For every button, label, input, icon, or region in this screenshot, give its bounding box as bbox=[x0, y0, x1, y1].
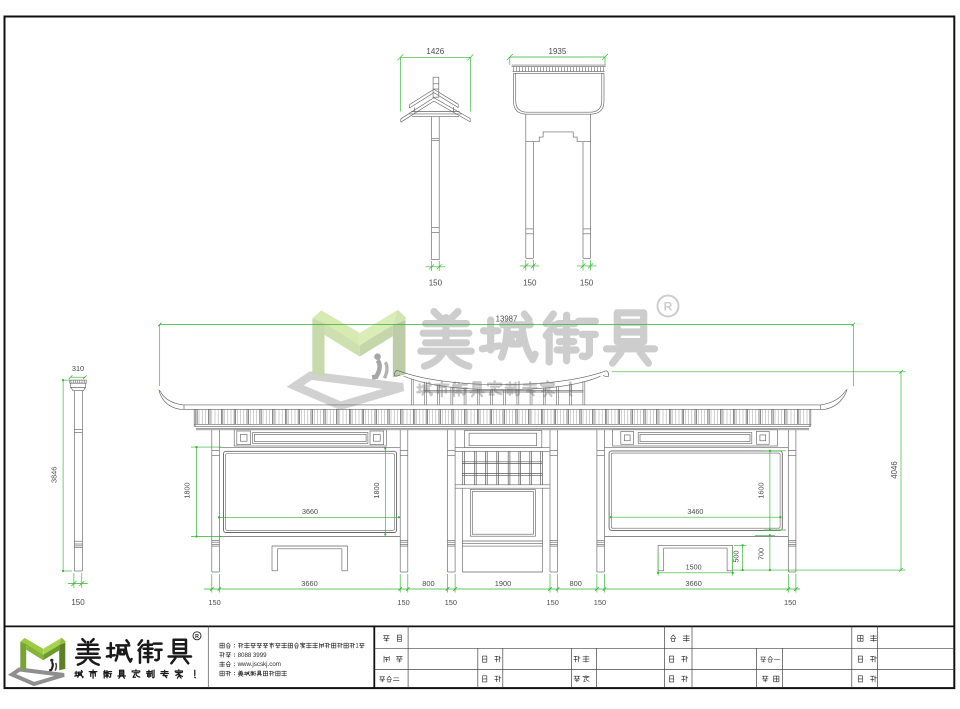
svg-text:4046: 4046 bbox=[890, 461, 899, 478]
svg-text:1: 1 bbox=[355, 643, 359, 650]
svg-text:1426: 1426 bbox=[426, 47, 444, 56]
svg-text:3999: 3999 bbox=[253, 652, 267, 659]
svg-text:R: R bbox=[195, 634, 199, 640]
svg-text:150: 150 bbox=[547, 598, 559, 607]
svg-text:150: 150 bbox=[71, 598, 85, 607]
svg-text:www.jscskj.com: www.jscskj.com bbox=[237, 661, 281, 668]
svg-text:1935: 1935 bbox=[549, 47, 567, 56]
svg-text:800: 800 bbox=[422, 579, 434, 588]
svg-text:8088: 8088 bbox=[238, 652, 252, 659]
svg-text:150: 150 bbox=[784, 598, 796, 607]
svg-text:700: 700 bbox=[757, 548, 766, 560]
svg-text:3846: 3846 bbox=[50, 467, 59, 483]
svg-text:800: 800 bbox=[570, 579, 582, 588]
svg-text:150: 150 bbox=[208, 598, 220, 607]
svg-text:3660: 3660 bbox=[302, 507, 318, 516]
svg-text:R: R bbox=[664, 300, 673, 314]
svg-text:3660: 3660 bbox=[685, 579, 701, 588]
svg-text:3660: 3660 bbox=[301, 579, 317, 588]
svg-text:1500: 1500 bbox=[686, 562, 702, 571]
svg-text:310: 310 bbox=[72, 364, 84, 373]
svg-text:1800: 1800 bbox=[372, 483, 381, 499]
svg-text:150: 150 bbox=[580, 279, 594, 288]
svg-text:3460: 3460 bbox=[687, 507, 703, 516]
svg-text:1900: 1900 bbox=[495, 579, 511, 588]
svg-text:150: 150 bbox=[397, 598, 409, 607]
svg-text:150: 150 bbox=[523, 279, 537, 288]
svg-text:150: 150 bbox=[429, 279, 443, 288]
svg-text:1800: 1800 bbox=[183, 483, 192, 499]
svg-text:150: 150 bbox=[594, 598, 606, 607]
svg-text:1600: 1600 bbox=[757, 483, 766, 499]
svg-text:150: 150 bbox=[445, 598, 457, 607]
svg-text:13987: 13987 bbox=[496, 315, 518, 324]
